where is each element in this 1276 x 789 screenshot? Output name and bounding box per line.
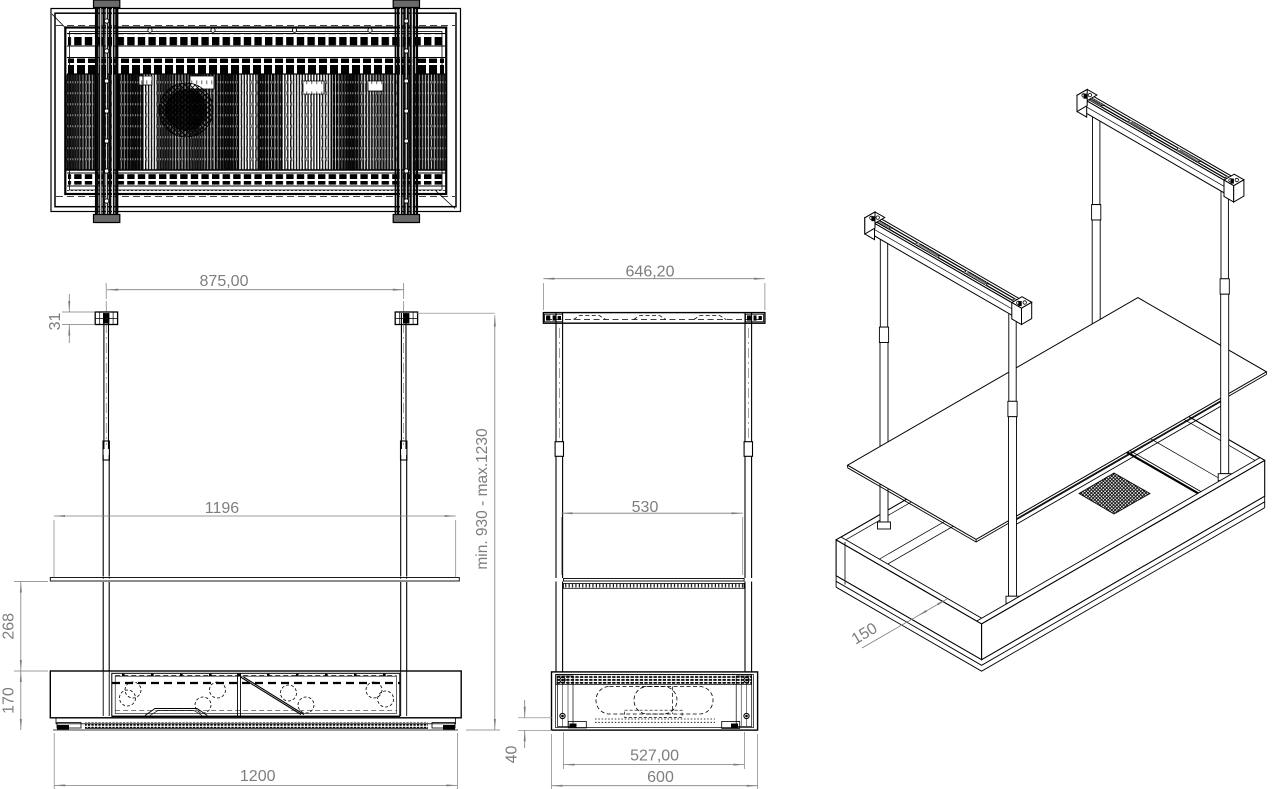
svg-text:170: 170 [1, 687, 18, 714]
svg-text:268: 268 [0, 613, 17, 640]
svg-text:1196: 1196 [205, 500, 240, 517]
svg-text:40: 40 [504, 746, 521, 764]
svg-text:1200: 1200 [240, 768, 276, 785]
svg-text:530: 530 [632, 499, 659, 516]
svg-text:31: 31 [47, 313, 64, 331]
svg-text:875,00: 875,00 [200, 273, 249, 290]
svg-text:600: 600 [647, 769, 674, 786]
svg-text:527,00: 527,00 [630, 748, 679, 765]
svg-text:min. 930 - max.1230: min. 930 - max.1230 [474, 428, 491, 570]
svg-text:646,20: 646,20 [626, 264, 675, 281]
